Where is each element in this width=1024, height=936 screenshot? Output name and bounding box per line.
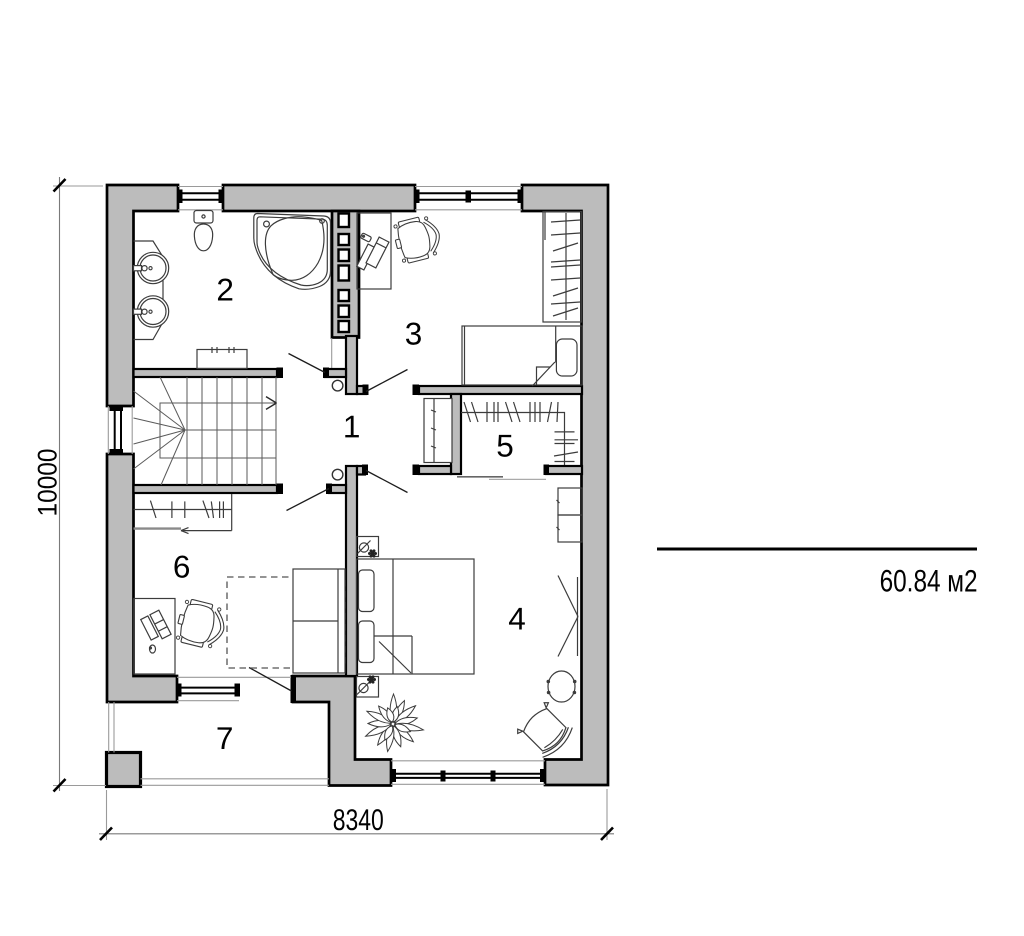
svg-text:10000: 10000 bbox=[33, 449, 63, 517]
svg-text:7: 7 bbox=[216, 720, 234, 756]
svg-text:1: 1 bbox=[343, 408, 361, 444]
svg-text:2: 2 bbox=[216, 271, 234, 307]
svg-text:3: 3 bbox=[405, 315, 423, 351]
svg-text:4: 4 bbox=[508, 600, 526, 636]
svg-text:60.84 м2: 60.84 м2 bbox=[880, 563, 978, 598]
svg-text:6: 6 bbox=[173, 548, 191, 584]
svg-text:5: 5 bbox=[496, 427, 514, 463]
svg-text:8340: 8340 bbox=[333, 804, 384, 837]
